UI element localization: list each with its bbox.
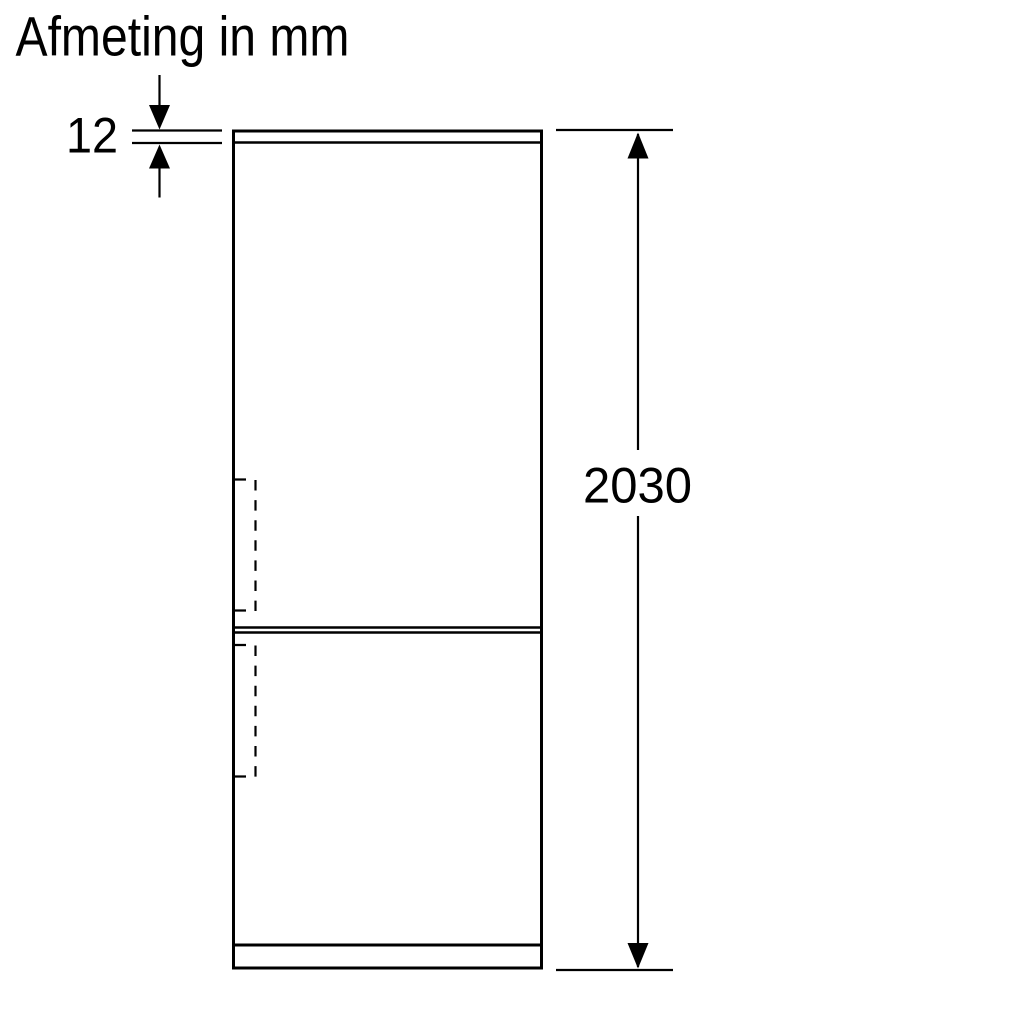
svg-text:2030: 2030 — [583, 457, 692, 514]
svg-text:Afmeting in mm: Afmeting in mm — [16, 6, 350, 68]
svg-text:12: 12 — [66, 108, 118, 164]
